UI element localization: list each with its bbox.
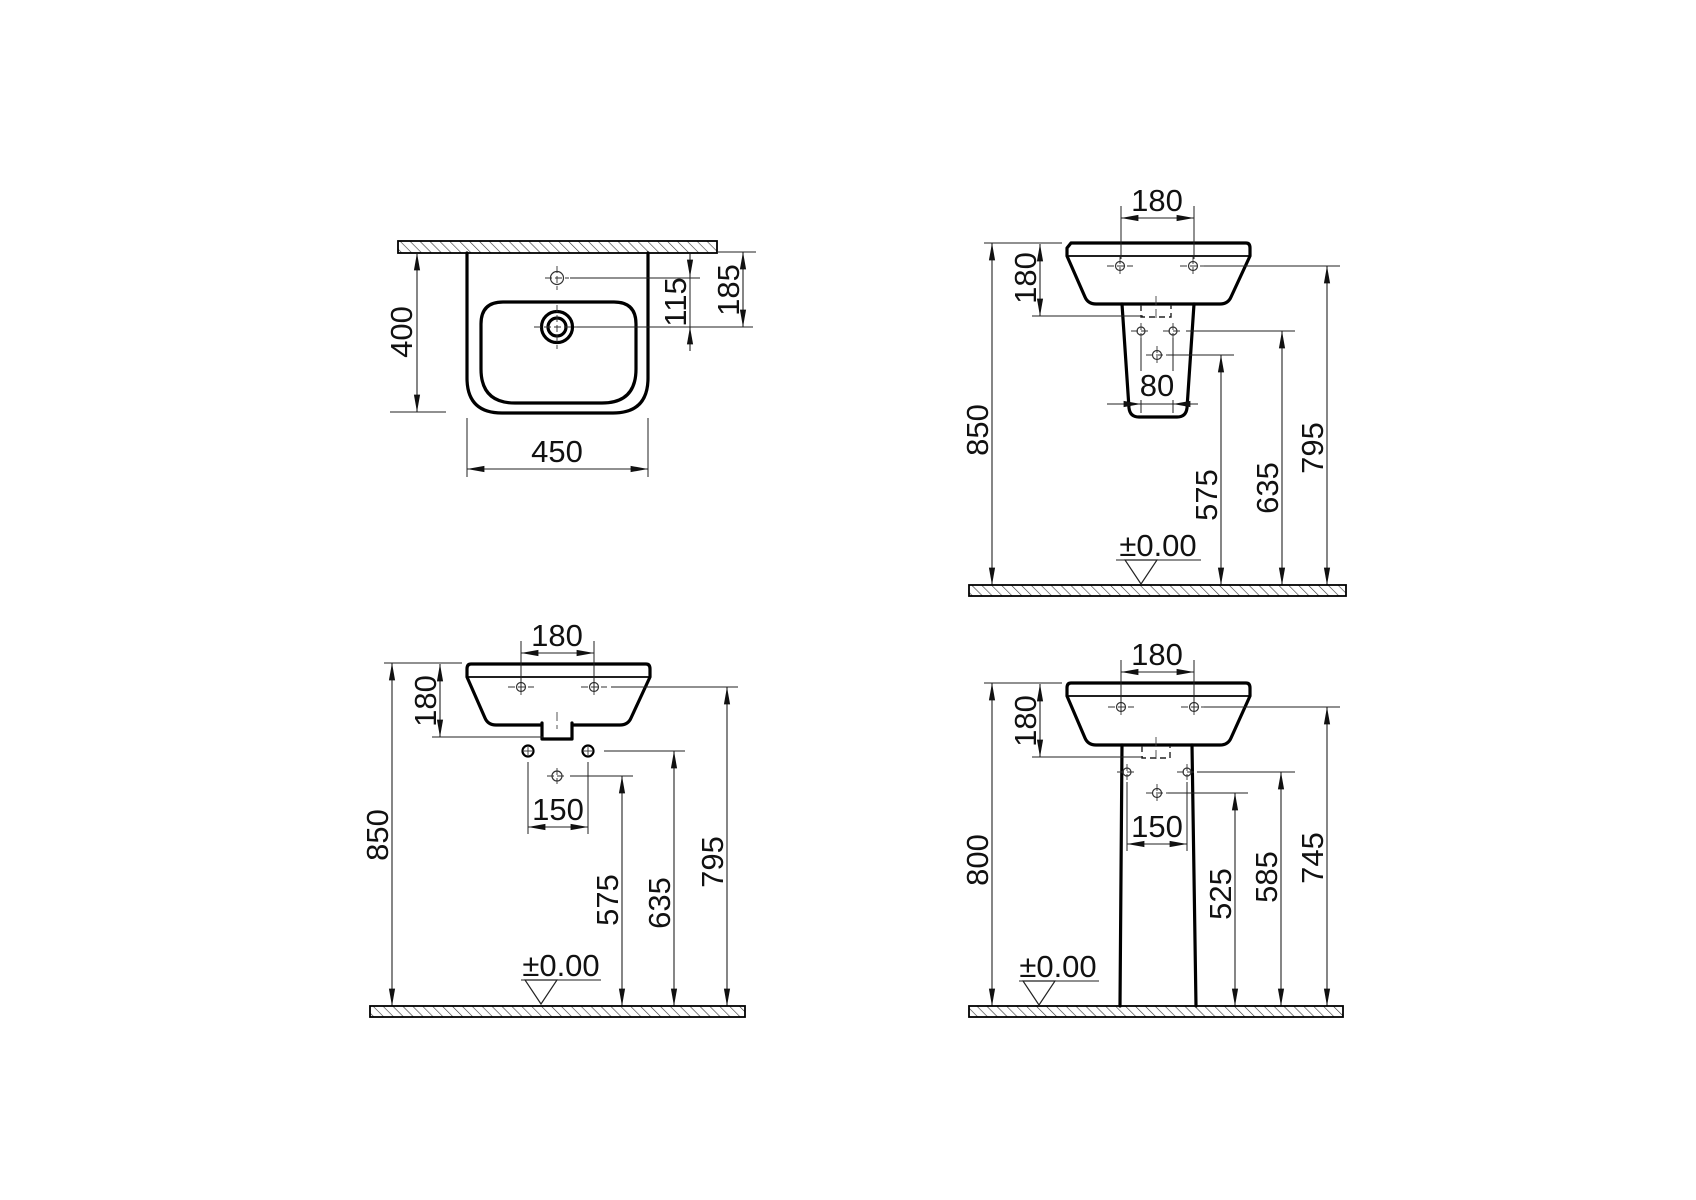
dim-supply-spacing: 150 [1127,782,1187,851]
dim-fixing-spacing-label: 180 [1131,183,1183,218]
trap-hole-icon [1146,784,1168,802]
fixing-hole-icon [1180,257,1206,275]
datum-label: ±0.00 [522,948,599,983]
dim-fixing-spacing: 180 [1121,637,1194,711]
dim-width: 450 [467,418,648,477]
dim-fixing-spacing: 180 [521,618,594,691]
dim-fixing-height-label: 745 [1295,832,1330,884]
dim-rim-height-label: 800 [960,834,995,886]
fixing-hole-icon [1107,257,1133,275]
dim-fixing-spacing-label: 180 [1131,637,1183,672]
dim-supply-height: 635 [642,751,677,1006]
dim-bracket-height: 635 [1250,331,1285,585]
floor-section [370,1006,745,1017]
pedestal-left-edge [1120,745,1122,1006]
technical-drawing-canvas: 400 450 115 185 [0,0,1696,1200]
view-wall-hung: 180 180 850 150 575 635 [360,618,745,1017]
pedestal-right-edge [1192,745,1196,1006]
dim-trap-spacing-label: 80 [1140,368,1174,403]
dim-supply-spacing-label: 150 [532,792,584,827]
dim-fixing-spacing: 180 [1121,183,1194,259]
dim-rim-height-label: 850 [960,404,995,456]
trap-hole-icon [547,768,567,784]
basin-outline-front [1067,683,1250,745]
datum-label: ±0.00 [1019,949,1096,984]
datum-label: ±0.00 [1119,528,1196,563]
floor-section [969,585,1346,596]
technical-drawing-page: 400 450 115 185 [0,0,1696,1200]
dim-basin-height-label: 180 [408,675,443,727]
basin-outline-side [1067,243,1250,304]
dim-drain-height-label: 525 [1203,868,1238,920]
dim-rim-height-label: 850 [360,809,395,861]
wall-section [398,241,717,253]
dim-basin-height-label: 180 [1008,695,1043,747]
floor-section [969,1006,1343,1017]
dim-tap-to-drain-label: 115 [658,277,693,326]
drain-stub-fill [543,722,571,738]
supply-hole-icon [583,746,594,757]
pedestal-hole-icon [1163,323,1183,339]
dim-trap-spacing: 80 [1107,338,1198,413]
dim-supply-height-label: 585 [1249,851,1284,903]
dim-wall-to-drain-label: 185 [711,264,746,316]
dim-wall-to-drain: 185 [711,252,746,327]
datum-symbol: ±0.00 [1019,949,1099,1005]
dim-supply-height: 585 [1249,772,1284,1006]
dim-tap-to-drain: 115 [658,254,693,351]
view-half-pedestal: 180 180 850 80 575 63 [960,183,1346,596]
dim-fixing-spacing-label: 180 [531,618,583,653]
basin-outline-plan [467,253,648,413]
view-pedestal: 180 180 800 150 525 585 [960,637,1343,1017]
dim-rim-height: 800 [960,683,995,1006]
dim-supply-spacing-label: 150 [1131,809,1183,844]
pedestal-hole-icon [1117,764,1137,780]
view-plan: 400 450 115 185 [384,241,756,477]
dim-fixing-height-label: 795 [1295,422,1330,474]
dim-supply-height-label: 635 [642,877,677,929]
dim-supply-spacing: 150 [528,762,588,834]
dim-depth-label: 400 [384,306,419,358]
dim-fixing-height: 795 [1295,266,1330,585]
tap-hole-icon [545,266,569,290]
dim-depth: 400 [384,253,446,412]
dim-fixing-height: 795 [695,687,730,1006]
basin-outline-front [467,664,650,725]
dim-rim-height: 850 [960,243,995,585]
pedestal-hole-icon [1131,323,1151,339]
dim-fixing-height: 745 [1295,707,1330,1006]
drain-hole-icon [534,305,580,349]
dim-drain-height-label: 575 [590,874,625,926]
dim-bracket-height-label: 635 [1250,462,1285,514]
dim-drain-height: 525 [1203,793,1238,1006]
dim-width-label: 450 [531,434,583,469]
dim-basin-height-label: 180 [1008,252,1043,304]
dim-drain-height-label: 575 [1189,469,1224,521]
datum-symbol: ±0.00 [1116,528,1201,584]
datum-symbol: ±0.00 [521,948,601,1004]
dim-rim-height: 850 [360,663,395,1006]
dim-fixing-height-label: 795 [695,836,730,888]
supply-hole-icon [523,746,534,757]
trap-hole-icon [1146,346,1168,364]
